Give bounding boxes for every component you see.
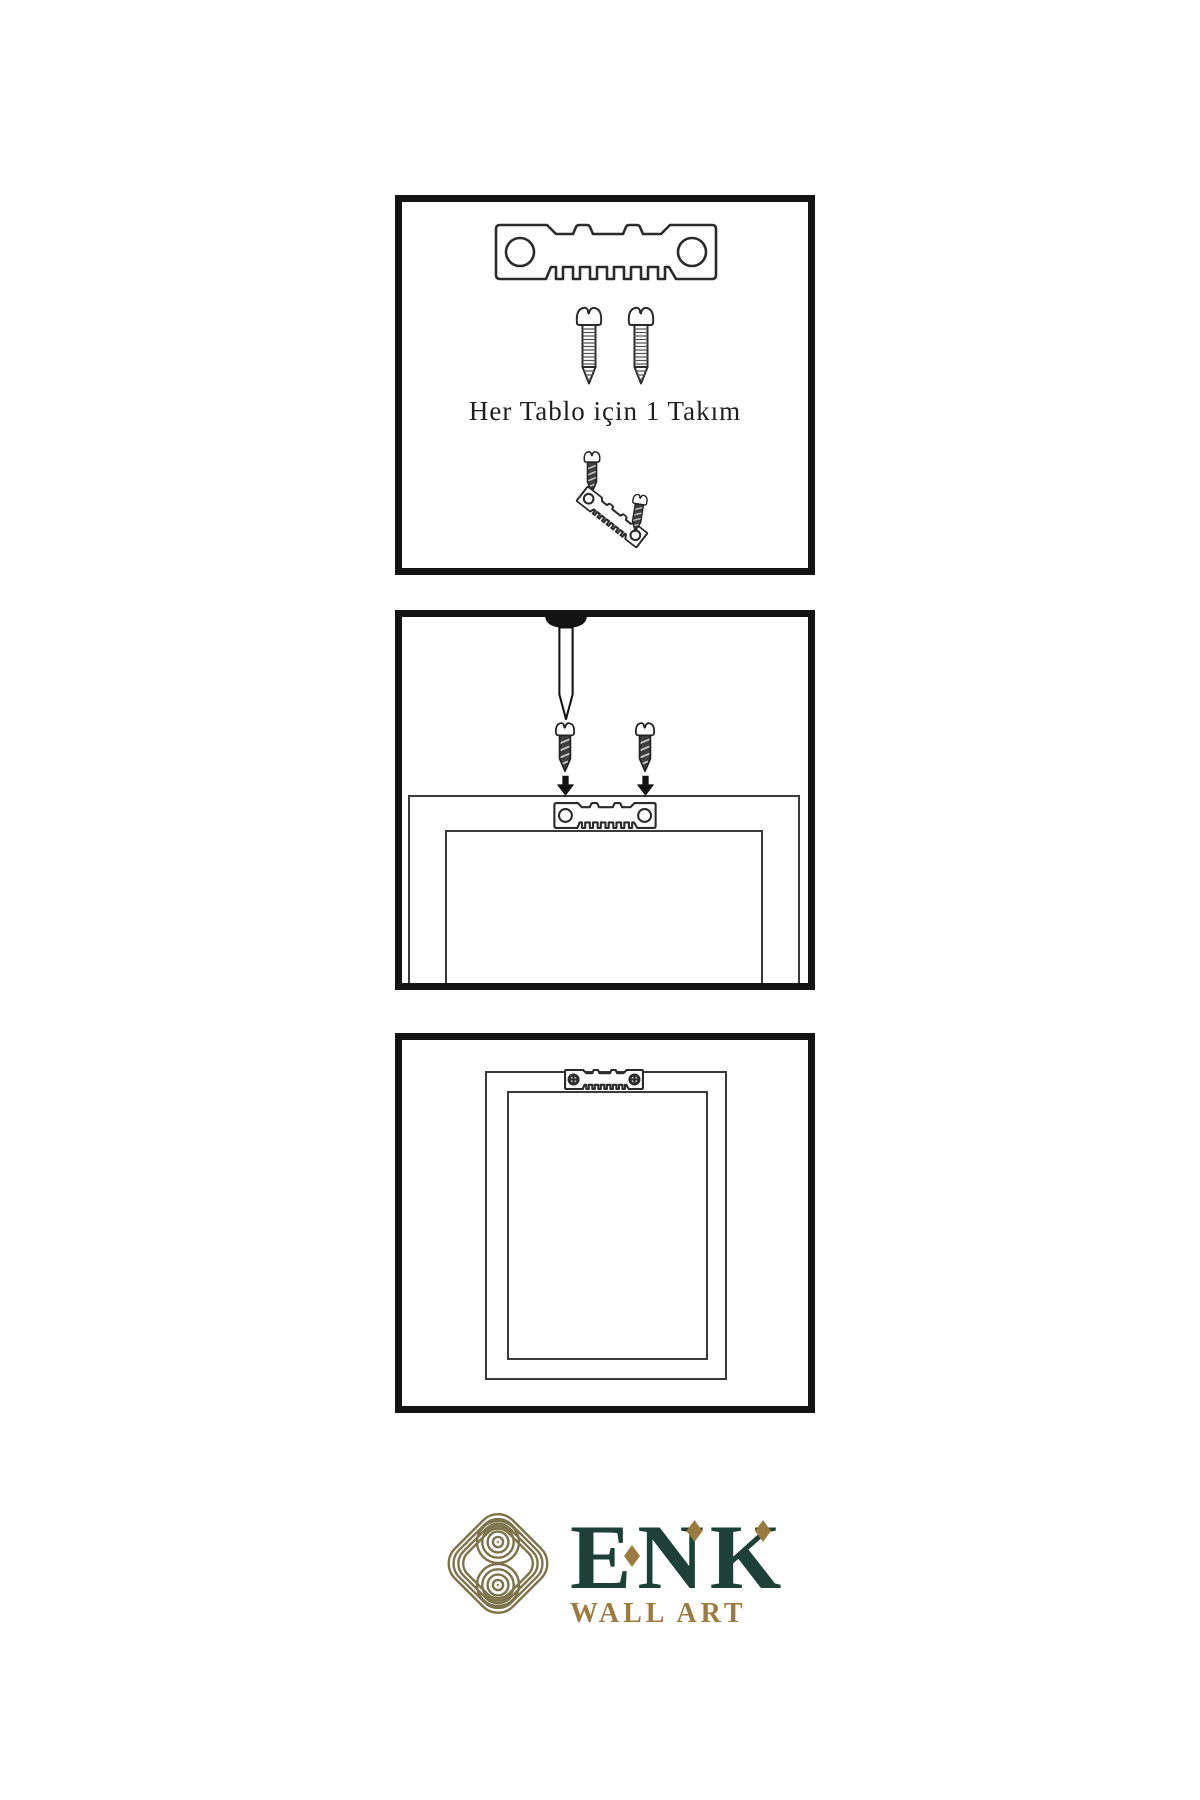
kit-caption: Her Tablo için 1 Takım bbox=[402, 396, 808, 427]
arrow-down-icon bbox=[556, 775, 575, 797]
nail-icon bbox=[543, 617, 589, 721]
kit-contents-panel: Her Tablo için 1 Takım bbox=[395, 195, 815, 575]
wall-install-panel bbox=[395, 610, 815, 990]
hung-frame-panel bbox=[395, 1033, 815, 1413]
dark-screw-icon bbox=[632, 721, 658, 773]
diamond-accent-icon bbox=[624, 1545, 640, 1567]
sawtooth-hanger-icon bbox=[493, 223, 719, 281]
diamond-accent-icon bbox=[754, 1520, 772, 1542]
arrow-down-icon bbox=[636, 775, 655, 797]
knot-logo-icon bbox=[440, 1500, 556, 1627]
screw-icon bbox=[626, 305, 656, 385]
frame-inner bbox=[507, 1091, 708, 1360]
sawtooth-hanger-on-frame-icon bbox=[553, 802, 657, 829]
frame-back-inner bbox=[445, 830, 763, 983]
dark-screw-icon bbox=[626, 492, 650, 534]
diamond-accent-icon bbox=[686, 1520, 703, 1542]
screw-icon bbox=[574, 305, 604, 385]
sawtooth-hanger-screwed-icon bbox=[564, 1069, 644, 1090]
instruction-sheet: Her Tablo için 1 Takım bbox=[0, 0, 1200, 1800]
brand-name-line: ENK bbox=[570, 1511, 790, 1591]
dark-screw-icon bbox=[552, 721, 578, 773]
logo-text: ENK WALL ART bbox=[570, 1511, 790, 1629]
